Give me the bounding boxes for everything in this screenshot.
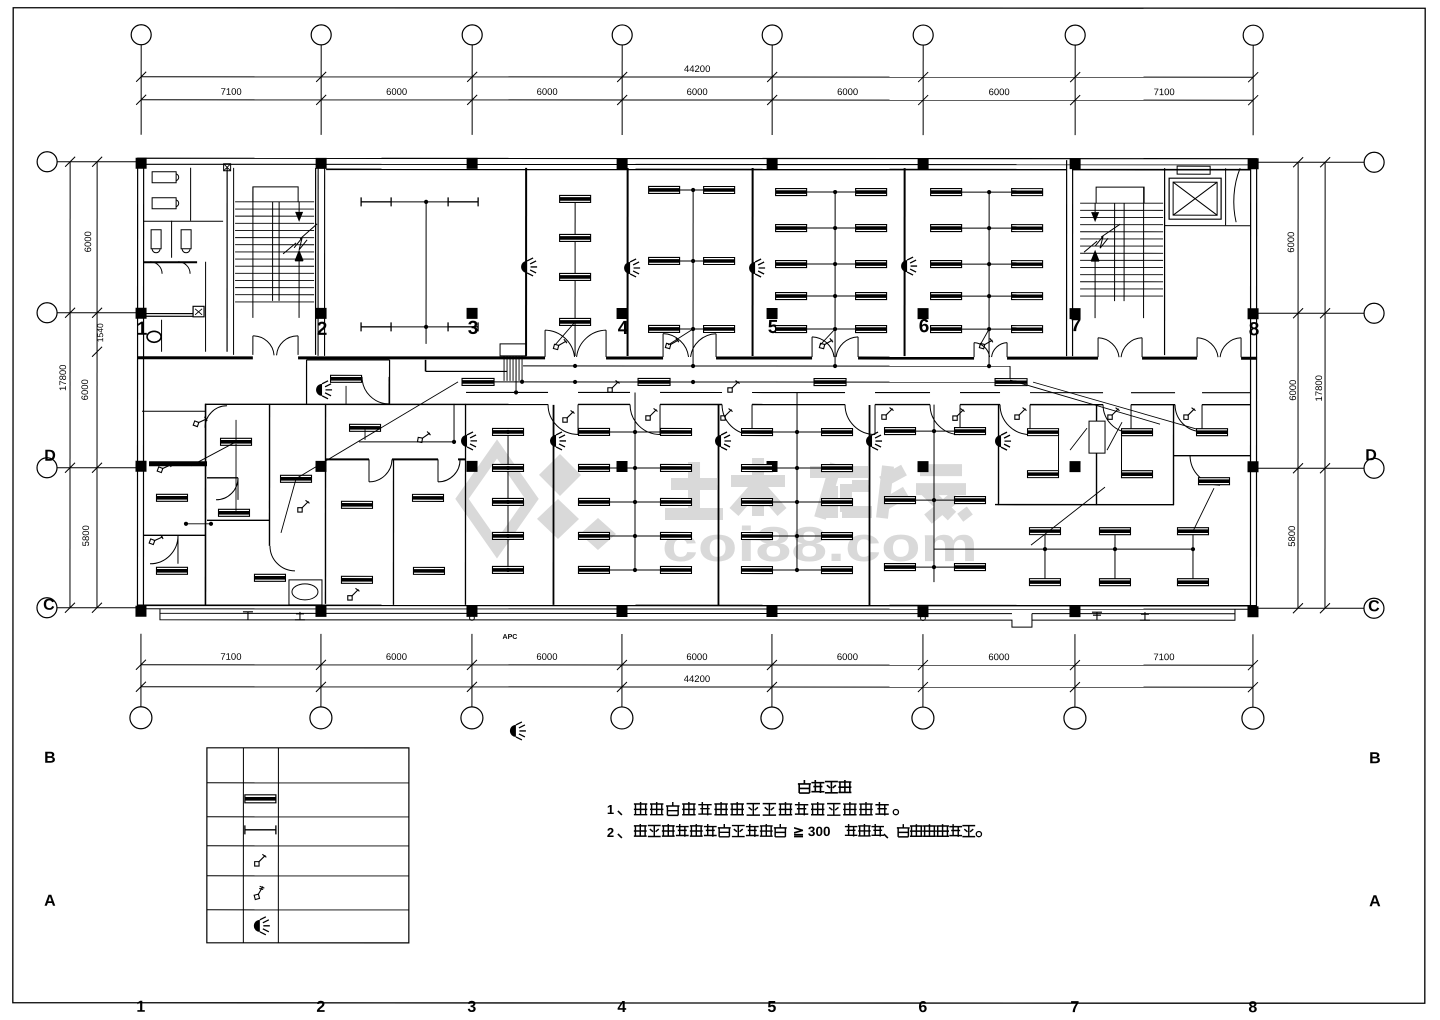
svg-text:4: 4 — [617, 999, 626, 1016]
svg-text:44200: 44200 — [684, 674, 710, 685]
svg-text:coi88.com: coi88.com — [662, 518, 978, 572]
svg-text:6000: 6000 — [386, 87, 407, 98]
svg-text:1: 1 — [607, 802, 614, 817]
svg-text:7100: 7100 — [221, 87, 242, 98]
svg-text:6000: 6000 — [1288, 380, 1299, 401]
svg-text:1540: 1540 — [95, 323, 105, 342]
svg-text:B: B — [44, 750, 56, 767]
svg-text:6000: 6000 — [989, 87, 1010, 98]
svg-text:6000: 6000 — [837, 652, 858, 663]
svg-text:7100: 7100 — [220, 652, 241, 663]
svg-text:6000: 6000 — [80, 379, 91, 400]
svg-text:3: 3 — [467, 999, 476, 1016]
svg-text:≧ 300: ≧ 300 — [793, 824, 831, 839]
svg-text:6: 6 — [919, 316, 930, 337]
svg-text:6000: 6000 — [537, 87, 558, 98]
svg-text:D: D — [1365, 447, 1377, 464]
svg-text:5800: 5800 — [1287, 526, 1298, 547]
svg-text:2: 2 — [316, 999, 325, 1016]
svg-text:D: D — [44, 448, 56, 465]
svg-text:6000: 6000 — [687, 87, 708, 98]
svg-text:6: 6 — [918, 999, 927, 1016]
svg-text:A: A — [44, 893, 56, 910]
svg-text:6000: 6000 — [837, 87, 858, 98]
svg-text:6000: 6000 — [686, 652, 707, 663]
svg-text:5800: 5800 — [81, 525, 92, 546]
svg-text:8: 8 — [1248, 999, 1257, 1016]
svg-text:C: C — [1368, 598, 1380, 615]
svg-text:6000: 6000 — [386, 652, 407, 663]
svg-text:7: 7 — [1070, 999, 1079, 1016]
svg-text:APC: APC — [503, 634, 518, 641]
svg-text:6000: 6000 — [83, 231, 94, 252]
svg-text:6000: 6000 — [1286, 232, 1297, 253]
svg-text:1: 1 — [137, 319, 148, 340]
svg-text:B: B — [1369, 750, 1381, 767]
svg-text:17800: 17800 — [1314, 375, 1325, 401]
svg-text:7100: 7100 — [1154, 87, 1175, 98]
svg-text:C: C — [43, 597, 55, 614]
svg-text:A: A — [1369, 893, 1381, 910]
svg-text:2: 2 — [607, 825, 614, 840]
svg-text:1: 1 — [136, 999, 145, 1016]
svg-text:6000: 6000 — [536, 652, 557, 663]
svg-text:8: 8 — [1249, 319, 1260, 340]
svg-text:3: 3 — [468, 318, 479, 339]
svg-text:5: 5 — [767, 999, 776, 1016]
svg-text:6000: 6000 — [988, 652, 1009, 663]
svg-text:44200: 44200 — [684, 64, 710, 75]
svg-text:7100: 7100 — [1153, 652, 1174, 663]
svg-text:17800: 17800 — [58, 365, 69, 391]
